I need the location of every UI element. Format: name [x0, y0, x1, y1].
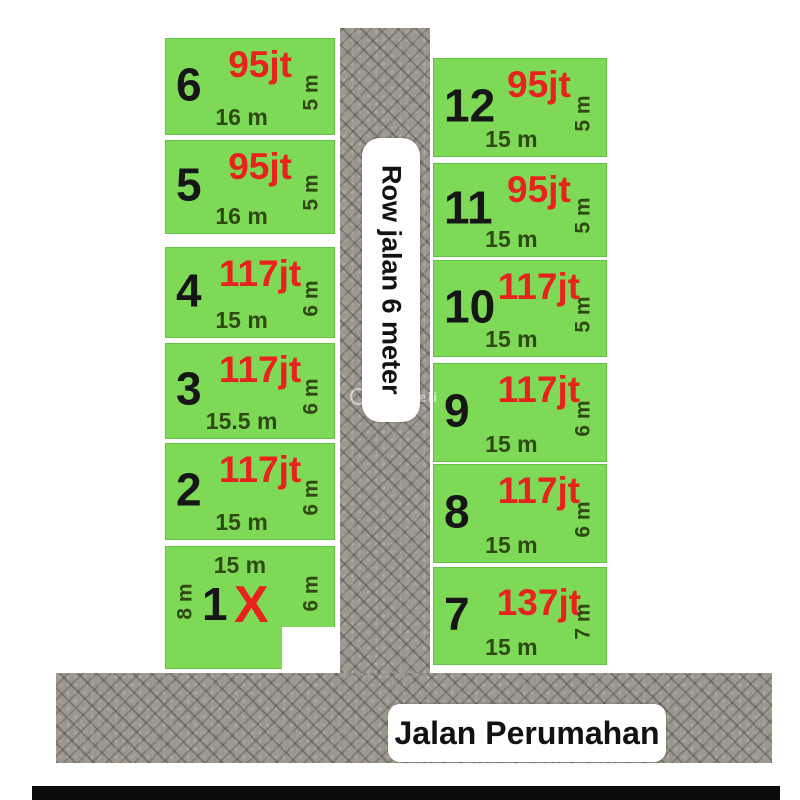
plot-depth-label: 5 m: [573, 193, 594, 239]
plot-price: 117jt: [219, 451, 301, 488]
plot-12: 12 95jt 15 m 5 m: [433, 58, 607, 157]
horizontal-road-label: Jalan Perumahan: [395, 715, 660, 752]
plot-number: 3: [176, 366, 202, 412]
plot-width-label: 15 m: [215, 309, 267, 332]
plot-number: 9: [444, 387, 470, 433]
plot-number: 10: [444, 283, 495, 329]
plot-right-depth-label: 6 m: [301, 571, 322, 617]
plot-width-label: 15 m: [485, 228, 537, 251]
plot-depth-label: 5 m: [301, 170, 322, 216]
plot-price: 117jt: [219, 255, 301, 292]
plot-price: 117jt: [498, 472, 580, 509]
plot-price: 95jt: [228, 148, 292, 185]
vertical-road-label: Row jalan 6 meter: [376, 165, 407, 395]
plot-price: 137jt: [497, 584, 581, 621]
plot-number: 1: [202, 581, 228, 627]
plot-number: 11: [444, 185, 493, 231]
plot-width-label: 15 m: [485, 636, 537, 659]
plot-number: 8: [444, 488, 470, 534]
plot-11: 11 95jt 15 m 5 m: [433, 163, 607, 257]
plot-9: 9 117jt 15 m 6 m: [433, 363, 607, 462]
plot-10: 10 117jt 15 m 5 m: [433, 260, 607, 357]
plot-width-label: 15 m: [214, 554, 266, 577]
plot-price: 95jt: [507, 171, 571, 208]
plot-depth-label: 5 m: [573, 90, 594, 136]
plot-width-label: 16 m: [215, 106, 267, 129]
plot-price: 95jt: [228, 46, 292, 83]
plot-width-label: 15 m: [485, 128, 537, 151]
plot-number: 2: [176, 466, 202, 512]
plot-width-label: 15.5 m: [206, 410, 278, 433]
plot-width-label: 15 m: [485, 534, 537, 557]
plot-depth-label: 5 m: [301, 69, 322, 115]
site-plan: Row jalan 6 meter Jalan Perumahan 6 95jt…: [0, 0, 800, 800]
plot-number: 7: [444, 591, 470, 637]
plot-width-label: 15 m: [485, 433, 537, 456]
plot-number: 12: [444, 82, 495, 128]
plot-depth-label: 6 m: [573, 395, 594, 441]
plot-1-boundary-notch: [282, 627, 335, 669]
plot-depth-label: 5 m: [573, 291, 594, 337]
plot-number: 5: [176, 162, 202, 208]
plot-width-label: 15 m: [215, 511, 267, 534]
plot-depth-label: 6 m: [301, 474, 322, 520]
plot-4: 4 117jt 15 m 6 m: [165, 247, 335, 338]
plot-left-depth-label: 8 m: [175, 579, 196, 625]
plot-8: 8 117jt 15 m 6 m: [433, 464, 607, 563]
plot-3: 3 117jt 15.5 m 6 m: [165, 343, 335, 439]
plot-price: 117jt: [498, 371, 580, 408]
plot-7: 7 137jt 15 m 7 m: [433, 567, 607, 665]
plot-depth-label: 6 m: [301, 374, 322, 420]
plot-6: 6 95jt 16 m 5 m: [165, 38, 335, 135]
plot-depth-label: 6 m: [573, 496, 594, 542]
plot-1: 15 m 8 m 1 X 6 m: [165, 546, 335, 669]
plot-number: 4: [176, 267, 202, 313]
plot-price: 117jt: [498, 268, 580, 305]
horizontal-road-label-pill: Jalan Perumahan: [388, 704, 666, 762]
plot-depth-label: 6 m: [301, 276, 322, 322]
plot-2: 2 117jt 15 m 6 m: [165, 443, 335, 540]
plot-width-label: 16 m: [215, 205, 267, 228]
vertical-road-label-pill: Row jalan 6 meter: [362, 138, 420, 422]
plot-number: 6: [176, 61, 202, 107]
plot-price: 95jt: [507, 66, 571, 103]
plot-5: 5 95jt 16 m 5 m: [165, 140, 335, 234]
plot-width-label: 15 m: [485, 328, 537, 351]
plot-depth-label: 7 m: [573, 599, 594, 645]
sold-x-marker: X: [234, 579, 269, 631]
bottom-black-bar: [32, 786, 780, 800]
plot-price: 117jt: [219, 351, 301, 388]
